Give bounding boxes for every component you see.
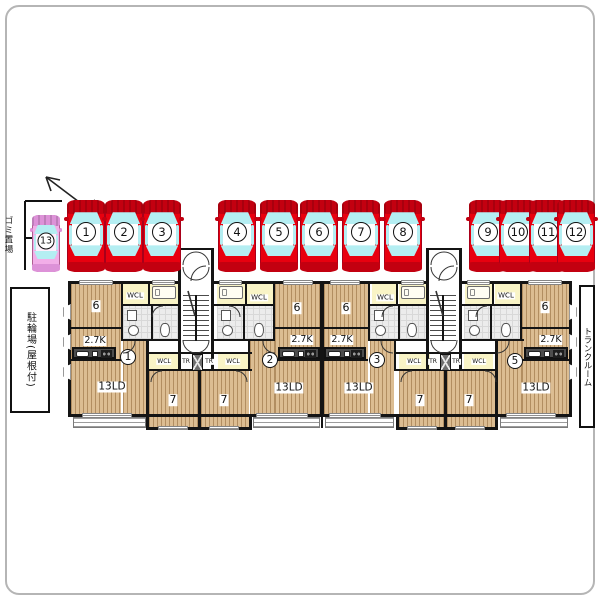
car-trunk-icon [67, 262, 105, 272]
unit-number-marker: 2 [262, 352, 278, 368]
mirror-icon [30, 228, 33, 231]
window [158, 426, 188, 430]
stove-icon [553, 350, 564, 358]
toilet-icon [254, 323, 264, 337]
car-trunk-icon [342, 262, 380, 272]
sink-icon [528, 351, 541, 357]
wall [273, 283, 275, 340]
window [330, 280, 360, 285]
parking-space-number: 6 [309, 222, 329, 242]
car-trunk-icon [557, 262, 595, 272]
side-window-icon [333, 225, 336, 244]
wall [121, 283, 123, 340]
parking-space-number: 3 [152, 222, 172, 242]
wall [394, 340, 396, 371]
rear-window-icon [34, 251, 58, 260]
wall [396, 283, 398, 305]
window [219, 280, 242, 285]
wall [321, 416, 323, 428]
sink-icon [76, 351, 89, 357]
parking-space-number: 7 [351, 222, 371, 242]
wall [151, 306, 153, 339]
mirror-icon [466, 217, 471, 221]
wall [243, 306, 245, 339]
wall [211, 248, 214, 284]
room-balcony [325, 417, 394, 428]
car-hood-icon [143, 200, 181, 214]
wall [368, 339, 428, 341]
room-label: 13LD [344, 382, 373, 393]
trunk-room-label: トランクルーム [581, 327, 593, 387]
wall [492, 283, 494, 305]
car-trunk-icon [143, 262, 181, 272]
wall [520, 283, 522, 340]
mirror-icon [339, 217, 344, 221]
room-label: WCL [471, 359, 486, 365]
wall [444, 371, 447, 428]
parking-car-3: 3 [143, 200, 181, 272]
washbasin-icon [128, 325, 139, 336]
car-trunk-icon [218, 262, 256, 272]
wall [245, 283, 247, 305]
car-hood-icon [105, 200, 143, 214]
room-balcony [73, 417, 146, 428]
pillow-icon [155, 289, 160, 296]
wall [462, 304, 522, 306]
kitchen-counter-icon [72, 347, 116, 359]
toilet-icon [407, 323, 417, 337]
mirror-icon [554, 217, 559, 221]
wall [275, 359, 320, 361]
parking-space-number: 10 [508, 222, 528, 242]
car-trunk-icon [384, 262, 422, 272]
window [79, 280, 113, 285]
room-label: 6 [342, 302, 351, 314]
room-label: WCL [156, 359, 171, 365]
window [283, 280, 313, 285]
wall [490, 306, 492, 339]
mirror-icon [496, 217, 501, 221]
window [455, 426, 485, 430]
wall [324, 327, 368, 329]
room-label: 2.7K [330, 335, 353, 345]
mirror-icon [381, 217, 386, 221]
washer-icon [221, 310, 231, 321]
parking-space-number: 2 [114, 222, 134, 242]
trunk-room-box: トランクルーム [579, 285, 595, 428]
pipe-space-icon [440, 354, 451, 371]
kitchen-counter-icon [278, 347, 320, 359]
window [506, 413, 556, 418]
room-label: WCL [376, 294, 394, 301]
window [467, 280, 490, 285]
mirror-icon [526, 217, 531, 221]
mirror-icon [102, 217, 107, 221]
bicycle-parking-box: 駐輪場(屋根付) [10, 287, 50, 413]
wall [248, 340, 250, 371]
unit-number-marker: 3 [369, 352, 385, 368]
parking-space-number: 5 [269, 222, 289, 242]
rear-window-icon [303, 245, 336, 256]
parking-car-1: 1 [67, 200, 105, 272]
wall [71, 359, 121, 361]
room-label: 2.7K [83, 336, 106, 346]
wall [248, 339, 275, 341]
toilet-icon [160, 323, 170, 337]
washbasin-icon [375, 325, 386, 336]
window [329, 413, 381, 418]
mirror-icon [297, 217, 302, 221]
room-label: WCL [406, 359, 421, 365]
parking-space-number: 11 [538, 222, 558, 242]
mirror-icon [59, 228, 62, 231]
rear-window-icon [560, 245, 593, 256]
sink2-icon [344, 351, 350, 357]
parking-car-12: 12 [557, 200, 595, 272]
mirror-icon [179, 217, 184, 221]
window [82, 413, 132, 418]
parking-car-5: 5 [260, 200, 298, 272]
parking-car-4: 4 [218, 200, 256, 272]
sink2-icon [544, 351, 550, 357]
pillow-icon [470, 289, 475, 296]
room-label: TR [204, 359, 214, 365]
rear-window-icon [221, 245, 254, 256]
stove-icon [351, 350, 362, 358]
parking-car-6: 6 [300, 200, 338, 272]
pipe-space-icon [192, 354, 203, 371]
wall [426, 248, 429, 284]
car-trunk-icon [105, 262, 143, 272]
car-hood-icon [218, 200, 256, 214]
wall [495, 339, 524, 341]
washer-icon [468, 310, 478, 321]
parking-space-number: 12 [566, 222, 586, 242]
unit-number-marker: 1 [120, 349, 136, 365]
wall [178, 248, 214, 250]
bed-icon [152, 286, 176, 299]
rear-window-icon [146, 245, 179, 256]
room-label: TR [428, 359, 438, 365]
wall [148, 283, 150, 305]
side-window-icon [293, 225, 296, 244]
window [209, 426, 239, 430]
car-hood-icon [32, 215, 60, 226]
bicycle-parking-label: 駐輪場(屋根付) [23, 312, 38, 388]
sink2-icon [298, 351, 304, 357]
parking-space-number: 1 [76, 222, 96, 242]
wall [398, 306, 400, 339]
car-hood-icon [557, 200, 595, 214]
car-hood-icon [342, 200, 380, 214]
sink-icon [282, 351, 295, 357]
wall [426, 248, 462, 250]
parking-space-number: 4 [227, 222, 247, 242]
room-label: 13LD [274, 382, 303, 393]
room-label: 6 [293, 302, 302, 314]
parking-car-7: 7 [342, 200, 380, 272]
wall [522, 359, 569, 361]
mirror-icon [215, 217, 220, 221]
wall [522, 327, 569, 329]
mirror-icon [257, 217, 262, 221]
wall [368, 283, 370, 340]
car-trunk-icon [260, 262, 298, 272]
wall [121, 339, 180, 341]
parking-car-8: 8 [384, 200, 422, 272]
car-hood-icon [260, 200, 298, 214]
parking-car-2: 2 [105, 200, 143, 272]
rear-window-icon [387, 245, 420, 256]
side-window-icon [176, 225, 179, 244]
room-label: 7 [416, 394, 425, 406]
parking-car-13: 13 [32, 215, 60, 272]
mirror-icon [593, 217, 598, 221]
bed-icon [467, 286, 490, 299]
car-trunk-icon [32, 264, 60, 272]
room-label: 7 [465, 394, 474, 406]
side-window-icon [417, 225, 420, 244]
parking-space-number: 9 [478, 222, 498, 242]
room-wood [497, 341, 522, 415]
mirror-icon [420, 217, 425, 221]
sink2-icon [92, 351, 98, 357]
side-window-icon [138, 225, 141, 244]
toilet-icon [501, 323, 511, 337]
room-label: 6 [92, 300, 101, 312]
wall [459, 248, 462, 284]
room-label: 13LD [521, 382, 550, 393]
mirror-icon [64, 217, 69, 221]
window [256, 413, 308, 418]
car-hood-icon [300, 200, 338, 214]
washer-icon [127, 310, 137, 321]
room-balcony [500, 417, 568, 428]
window [152, 280, 175, 285]
parking-space-number: 8 [393, 222, 413, 242]
room-balcony [253, 417, 320, 428]
washbasin-icon [469, 325, 480, 336]
pillow-icon [222, 289, 227, 296]
rear-window-icon [108, 245, 141, 256]
rear-window-icon [70, 245, 103, 256]
room-label: TR [451, 359, 461, 365]
garbage-area-label: ゴミ置場 [2, 216, 14, 254]
car-hood-icon [384, 200, 422, 214]
washbasin-icon [222, 325, 233, 336]
site-floorplan-image: ゴミ置場 駐輪場(屋根付) トランクルーム 66662.7K2.7K2.7K2.… [0, 0, 600, 600]
side-window-icon [56, 235, 58, 250]
sink-icon [328, 351, 341, 357]
washer-icon [374, 310, 384, 321]
wall [195, 295, 197, 341]
side-window-icon [100, 225, 103, 244]
car-hood-icon [67, 200, 105, 214]
room-label: WCL [126, 292, 144, 299]
car-trunk-icon [300, 262, 338, 272]
wall [198, 371, 201, 428]
room-label: 7 [169, 394, 178, 406]
window [528, 280, 562, 285]
room-label: 13LD [97, 381, 126, 392]
side-window-icon [251, 225, 254, 244]
room-label: WCL [225, 359, 240, 365]
wall [71, 327, 121, 329]
bed-icon [401, 286, 425, 299]
rear-window-icon [263, 245, 296, 256]
room-label: TR [181, 359, 191, 365]
window [407, 426, 437, 430]
pillow-icon [404, 289, 409, 296]
unit-number-marker: 5 [507, 353, 523, 369]
room-label: 7 [220, 394, 229, 406]
room-label: 2.7K [290, 335, 313, 345]
kitchen-counter-icon [324, 347, 366, 359]
side-window-icon [590, 225, 593, 244]
wall [324, 359, 368, 361]
window [401, 280, 424, 285]
side-window-icon [375, 225, 378, 244]
kitchen-counter-icon [524, 347, 568, 359]
stove-icon [101, 350, 112, 358]
stove-icon [305, 350, 316, 358]
bed-icon [219, 286, 243, 299]
room-label: 2.7K [539, 335, 562, 345]
wall [442, 295, 444, 341]
parking-space-number: 13 [38, 232, 55, 249]
rear-window-icon [345, 245, 378, 256]
room-label: WCL [250, 294, 268, 301]
wall [275, 327, 320, 329]
mirror-icon [140, 217, 145, 221]
room-label: 6 [541, 301, 550, 313]
room-label: WCL [497, 292, 515, 299]
